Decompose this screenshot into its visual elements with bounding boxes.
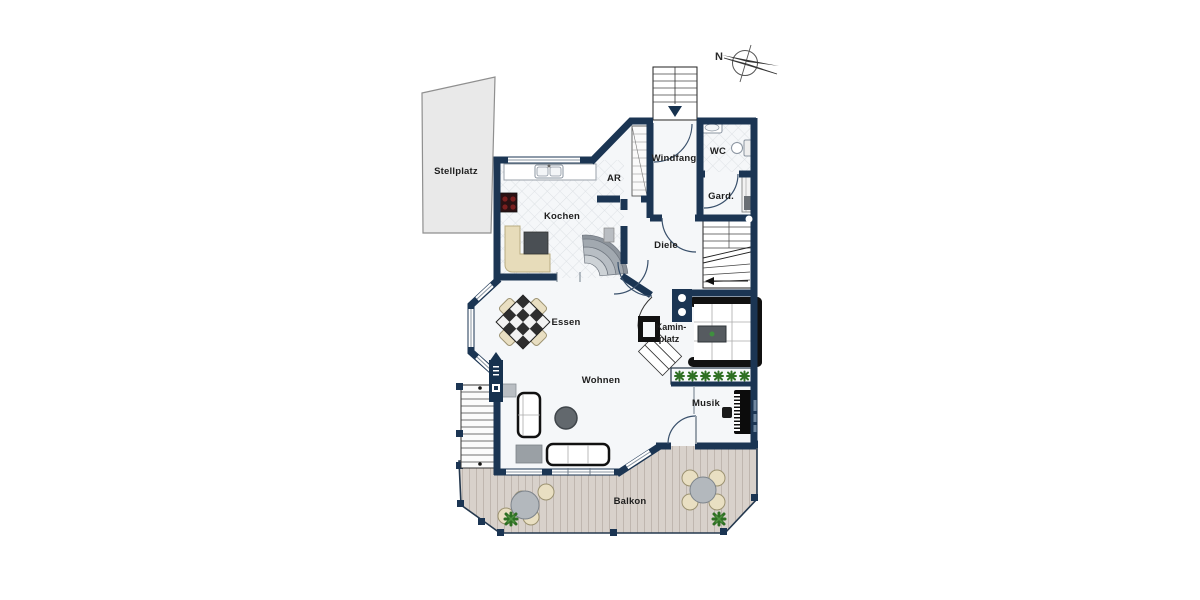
radiator <box>604 228 614 242</box>
floor-plan-svg: N Stellplatz Kochen AR Windfang WC Gard.… <box>0 0 1200 600</box>
door-mat <box>502 384 516 397</box>
room-label-stellplatz: Stellplatz <box>434 166 478 177</box>
room-label-wohnen: Wohnen <box>582 375 621 386</box>
deck-plant-left <box>505 513 517 525</box>
niche-pillar <box>672 289 692 322</box>
kitchen-table <box>524 232 548 254</box>
sofa-three-seat <box>547 444 609 465</box>
room-label-ar: AR <box>607 173 621 184</box>
room-label-wc: WC <box>710 146 726 157</box>
kitchen-sink <box>535 165 563 179</box>
room-label-kochen: Kochen <box>544 211 580 222</box>
room-label-gard: Gard. <box>708 191 734 202</box>
coffee-table <box>555 407 577 429</box>
room-label-essen: Essen <box>552 317 581 328</box>
entry-stairs <box>653 67 697 120</box>
room-label-kamin-line1: Kamin- <box>656 322 687 332</box>
wall-spot <box>746 216 753 223</box>
room-label-kamin-line2: platz <box>659 334 680 344</box>
watermark-ribbon-left <box>489 352 503 402</box>
room-label-diele: Diele <box>654 240 678 251</box>
piano-stool <box>722 407 732 418</box>
room-label-musik: Musik <box>692 398 720 409</box>
ar-wardrobe <box>632 126 647 196</box>
stove <box>500 193 517 212</box>
stellplatz-area <box>422 77 495 233</box>
room-label-windfang: Windfang <box>652 153 697 164</box>
deck-plant-right <box>713 513 725 525</box>
rug <box>516 445 542 463</box>
planter <box>671 368 755 384</box>
diele-stairs <box>703 220 755 288</box>
floor-plan-page: N Stellplatz Kochen AR Windfang WC Gard.… <box>0 0 1200 600</box>
room-label-balkon: Balkon <box>614 496 647 507</box>
corner-bench <box>505 226 550 272</box>
watermark-ribbon-right <box>754 400 757 432</box>
north-compass-icon: N <box>715 45 779 82</box>
loveseat <box>518 393 540 437</box>
north-label: N <box>715 51 723 63</box>
